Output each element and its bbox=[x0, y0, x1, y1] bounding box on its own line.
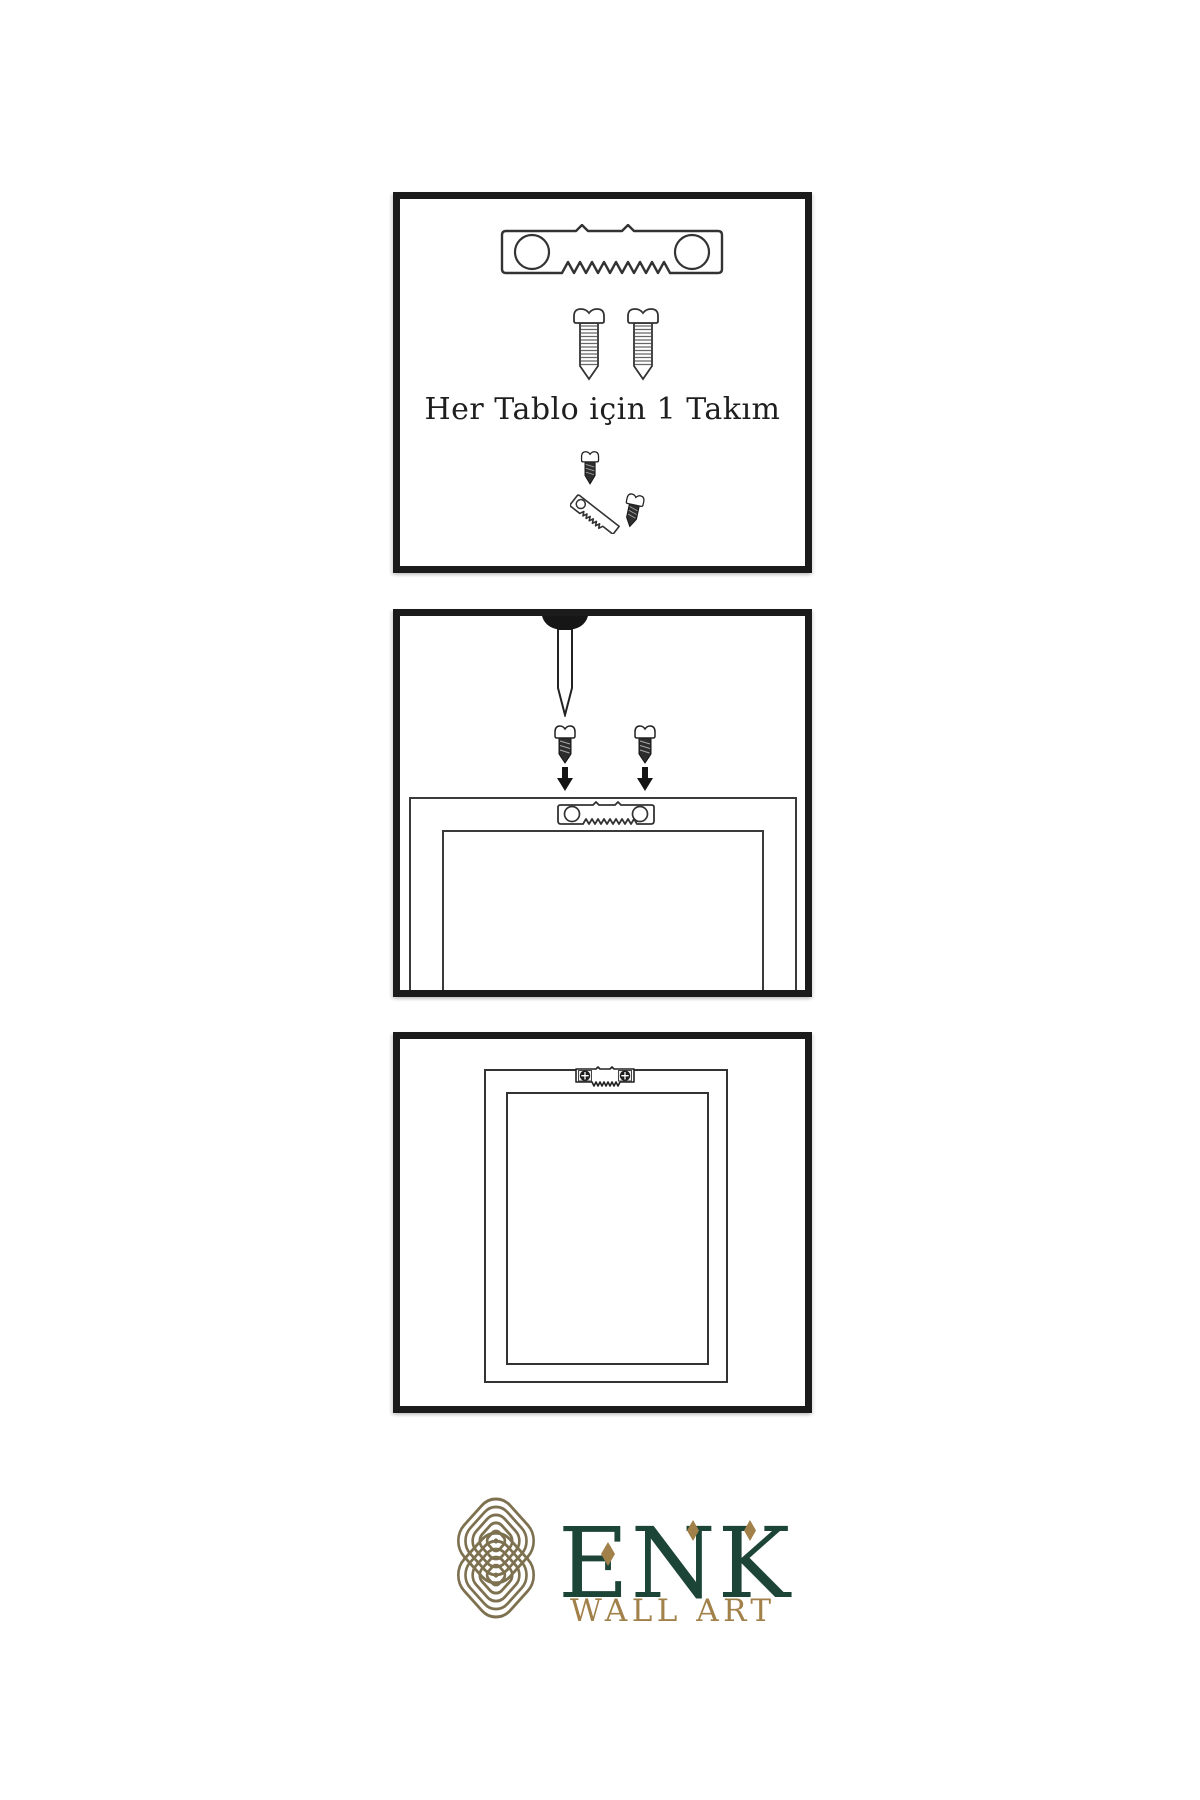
nail-icon bbox=[541, 616, 589, 717]
arrow-down-icon bbox=[557, 767, 573, 791]
sawtooth-hanger-installed-icon bbox=[572, 1066, 638, 1090]
step-1-panel: Her Tablo için 1 Takım bbox=[393, 192, 812, 573]
kit-caption: Her Tablo için 1 Takım bbox=[400, 392, 805, 427]
screw-down-icon bbox=[632, 724, 658, 764]
screw-down-icon bbox=[552, 724, 578, 764]
brand-subtitle: WALL ART bbox=[570, 1593, 776, 1629]
frame-back-inner bbox=[506, 1092, 709, 1365]
screw-icon bbox=[570, 306, 608, 382]
step-2-panel bbox=[393, 609, 812, 997]
step-3-panel bbox=[393, 1032, 812, 1413]
instruction-sheet: Her Tablo için 1 Takım bbox=[0, 0, 1200, 1800]
screw-into-hanger-icon bbox=[570, 449, 650, 534]
screw-icon bbox=[624, 306, 662, 382]
sawtooth-hanger-icon bbox=[555, 801, 657, 827]
frame-back-outer bbox=[484, 1069, 728, 1383]
arrow-down-icon bbox=[637, 767, 653, 791]
sawtooth-hanger-icon bbox=[494, 224, 730, 280]
frame-back-inner bbox=[442, 830, 764, 990]
knot-logo-icon bbox=[434, 1489, 558, 1627]
